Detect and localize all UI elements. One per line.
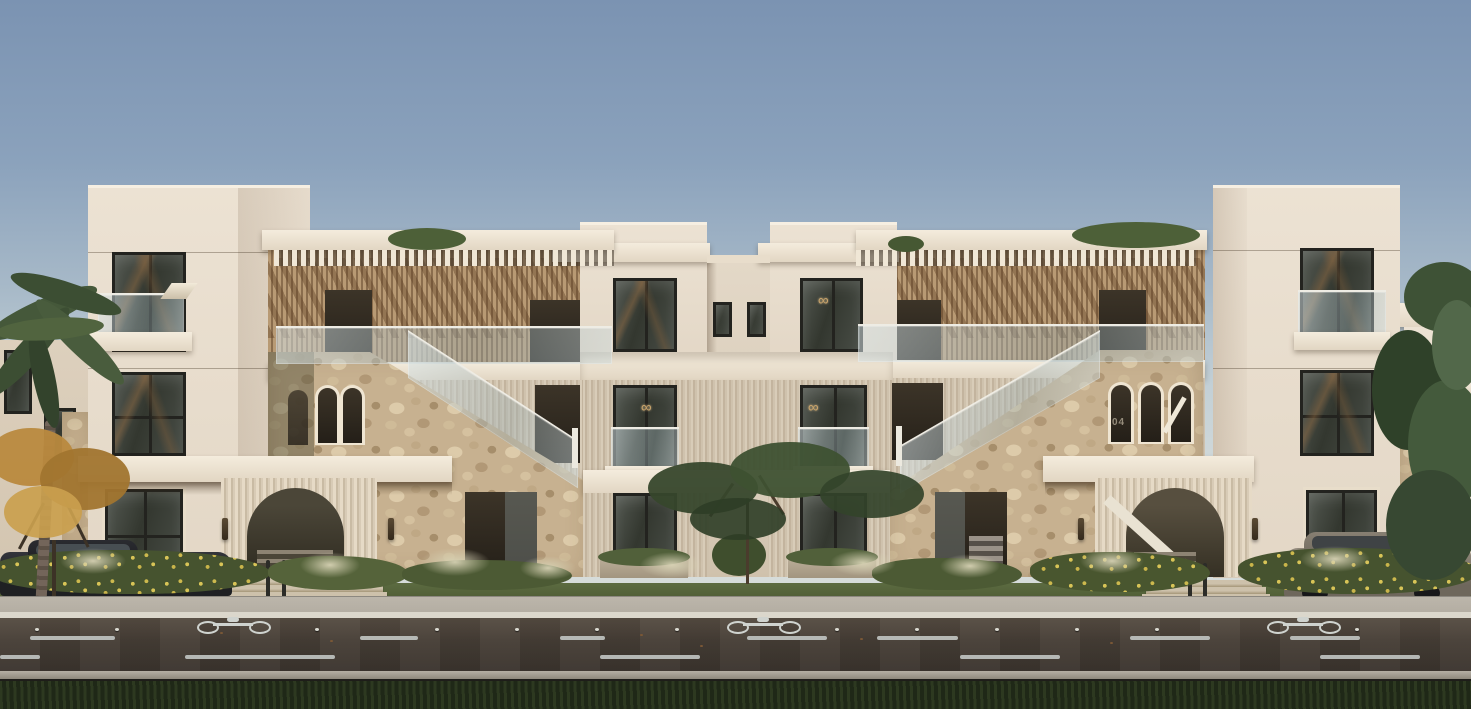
ornamental-grass — [300, 552, 360, 578]
ornamental-grass — [520, 556, 576, 580]
ornamental-grass — [420, 548, 490, 576]
road-debris — [860, 638, 863, 640]
lane-marking-dash — [30, 636, 115, 640]
bike-frame — [1283, 623, 1323, 626]
chandelier-icon: ∞ — [808, 399, 819, 416]
road-stud — [915, 628, 919, 631]
road-stud — [835, 628, 839, 631]
unit-number-label: 04 — [1112, 417, 1125, 428]
center-right-volume-cap — [770, 222, 897, 225]
right-terrace-balustrade-glass — [858, 324, 1204, 362]
right-tower-floor-line — [1213, 368, 1400, 369]
left-arched-window — [318, 388, 337, 443]
bay-bush — [712, 534, 766, 576]
ornamental-grass — [60, 548, 126, 574]
center-left-volume-cap — [580, 222, 707, 225]
road-stud — [675, 628, 679, 631]
roof-greenery — [388, 228, 466, 250]
lane-marking-dash — [185, 655, 335, 659]
center-left-window-3f — [613, 278, 677, 352]
tree-foliage — [690, 498, 786, 540]
road-stud — [995, 628, 999, 631]
left-arched-window — [343, 388, 362, 443]
ornamental-grass — [1300, 546, 1370, 572]
wall-sconce — [1078, 518, 1084, 540]
lane-marking-dash — [1320, 655, 1420, 659]
right-arched-window — [1111, 385, 1131, 442]
right-tower-balcony-slab — [1294, 332, 1390, 350]
chandelier-icon: ∞ — [818, 292, 829, 309]
road-debris — [220, 632, 223, 634]
chandelier-icon: ∞ — [641, 399, 652, 416]
lane-marking-dash — [747, 636, 827, 640]
ornamental-grass — [640, 552, 704, 578]
wall-sconce — [388, 518, 394, 540]
right-tower-juliet-balcony-glass — [1298, 290, 1386, 336]
left-tower-parapet-cap — [88, 185, 310, 188]
road-stud — [1075, 628, 1079, 631]
left-pergola-slats — [274, 250, 614, 266]
window-reflection — [115, 375, 183, 453]
left-tower-window-2f — [112, 372, 186, 456]
lane-marking-dash — [360, 636, 418, 640]
bike-lane-icon — [1267, 617, 1341, 630]
road-stud — [1355, 628, 1359, 631]
lane-marking-dash — [560, 636, 605, 640]
road-stud — [515, 628, 519, 631]
lane-marking-dash — [877, 636, 958, 640]
left-tower-balcony-slab — [90, 332, 192, 351]
autumn-tree-trunk — [52, 540, 56, 604]
road-stud — [435, 628, 439, 631]
wall-sconce — [1252, 518, 1258, 540]
architectural-render-scene: ∞ ∞ ∞ 04 — [0, 0, 1471, 709]
center-bay-small-window — [747, 302, 766, 337]
right-pergola-slats — [856, 250, 1196, 266]
ornamental-grass — [830, 550, 896, 576]
lane-marking-dash — [600, 655, 700, 659]
right-arched-window — [1141, 385, 1161, 442]
road-stud — [1155, 628, 1159, 631]
lane-marking-dash — [1290, 636, 1360, 640]
lane-marking-dash — [0, 655, 40, 659]
bike-lane-icon — [727, 617, 801, 630]
left-stair-glass-end-post — [572, 428, 578, 468]
window-mullion — [105, 535, 183, 538]
bike-rider — [757, 617, 769, 622]
ornamental-grass — [940, 554, 1000, 578]
autumn-foliage — [4, 486, 82, 538]
window-reflection — [616, 281, 674, 349]
roof-greenery — [1072, 222, 1200, 248]
bike-frame — [213, 623, 253, 626]
road-debris — [330, 640, 333, 642]
bike-rider — [1297, 617, 1309, 622]
bike-rider — [227, 617, 239, 622]
road-debris — [700, 645, 703, 647]
right-tower-parapet-cap — [1213, 185, 1400, 188]
right-stair-glass-end-post — [896, 426, 902, 466]
window-reflection — [1303, 373, 1371, 453]
roof-greenery — [888, 236, 924, 252]
center-bay-small-window — [713, 302, 732, 337]
window-mullion — [832, 278, 835, 352]
center-floor-band — [580, 352, 893, 380]
bike-frame — [743, 623, 783, 626]
center-bay-parapet — [707, 255, 770, 263]
ornamental-grass — [1080, 548, 1144, 574]
road-stud — [35, 628, 39, 631]
right-tower-window-2f — [1300, 370, 1374, 456]
bike-lane-icon — [197, 617, 271, 630]
left-arched-niche — [288, 390, 308, 445]
wall-sconce — [222, 518, 228, 540]
gutter-curb — [0, 671, 1471, 679]
tree-canopy — [1386, 470, 1471, 580]
road-debris — [1110, 642, 1113, 644]
road-stud — [315, 628, 319, 631]
lane-marking-dash — [1130, 636, 1210, 640]
foreground-lawn — [0, 681, 1471, 709]
road-debris — [640, 634, 643, 636]
road-stud — [595, 628, 599, 631]
tree-foliage — [820, 470, 924, 518]
road-stud — [115, 628, 119, 631]
lane-marking-dash — [960, 655, 1060, 659]
center-right-window-3f: ∞ — [800, 278, 863, 352]
